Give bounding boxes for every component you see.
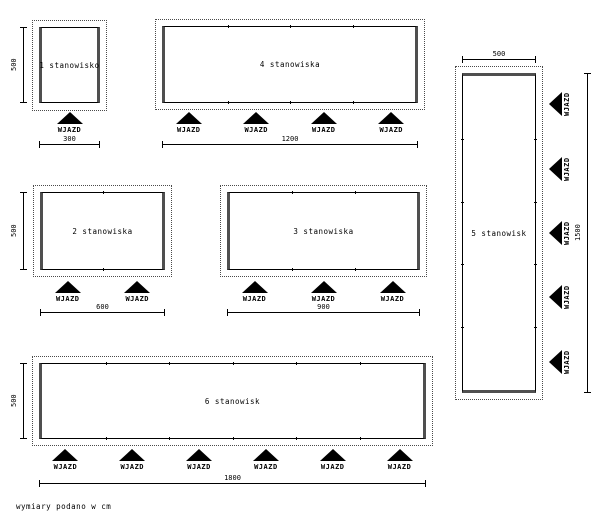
entrance-arrow-up-icon bbox=[311, 112, 337, 124]
entrance-label: WJAZD bbox=[187, 463, 211, 471]
layout-label: 3 stanowiska bbox=[293, 227, 353, 236]
entrance-marker: WJAZD bbox=[114, 281, 160, 303]
entrance-label: WJAZD bbox=[562, 210, 572, 256]
entrance-arrow-up-icon bbox=[124, 281, 150, 293]
entrance-arrows: WJAZDWJAZDWJAZDWJAZD bbox=[155, 112, 425, 134]
stall-divider-tick bbox=[106, 362, 107, 365]
stall-divider-tick bbox=[106, 437, 107, 440]
entrance-label: WJAZD bbox=[120, 463, 144, 471]
stall-divider-tick bbox=[233, 362, 234, 365]
entrance-label: WJAZD bbox=[562, 274, 572, 320]
entrance-marker: WJAZD bbox=[370, 281, 416, 303]
dimension-line bbox=[40, 312, 165, 313]
width-dimension: 500 bbox=[462, 48, 536, 60]
entrance-marker: WJAZD bbox=[42, 449, 88, 471]
entrance-arrow-up-icon bbox=[186, 449, 212, 461]
width-dimension: 300 bbox=[39, 133, 100, 145]
entrance-label: WJAZD bbox=[562, 81, 572, 127]
entrance-marker: WJAZD bbox=[47, 112, 93, 134]
stall-divider-tick bbox=[228, 101, 229, 104]
entrance-arrow-left-icon bbox=[549, 285, 562, 309]
entrance-arrow-up-icon bbox=[242, 281, 268, 293]
entrance-arrows: WJAZD bbox=[32, 112, 107, 134]
stall-divider-tick bbox=[534, 139, 537, 140]
stall-divider-tick bbox=[290, 101, 291, 104]
dimension-value: 500 bbox=[9, 363, 19, 439]
entrance-arrow-up-icon bbox=[52, 449, 78, 461]
dimension-value: 1200 bbox=[162, 135, 418, 143]
dimension-line bbox=[23, 192, 24, 270]
entrance-marker: WJAZD bbox=[166, 112, 212, 134]
dimension-line bbox=[227, 312, 420, 313]
stall-divider-tick bbox=[296, 362, 297, 365]
entrance-marker: WJAZD bbox=[243, 449, 289, 471]
layout-label: 6 stanowisk bbox=[205, 397, 260, 406]
entrance-arrow-up-icon bbox=[378, 112, 404, 124]
width-dimension: 1200 bbox=[162, 133, 418, 145]
stall-divider-tick bbox=[461, 327, 464, 328]
stall-divider-tick bbox=[103, 191, 104, 194]
stall-divider-tick bbox=[169, 437, 170, 440]
stall-divider-tick bbox=[534, 202, 537, 203]
entrance-arrows: WJAZDWJAZD bbox=[33, 281, 172, 303]
dimension-value: 600 bbox=[40, 303, 165, 311]
entrance-arrow-up-icon bbox=[119, 449, 145, 461]
stall-divider-tick bbox=[353, 101, 354, 104]
garage-rect: 2 stanowiska bbox=[40, 192, 165, 270]
entrance-arrow-up-icon bbox=[311, 281, 337, 293]
stall-divider-tick bbox=[353, 25, 354, 28]
dimension-value: 500 bbox=[462, 50, 536, 58]
stall-divider-tick bbox=[292, 268, 293, 271]
layout-label: 1 stanowisko bbox=[39, 61, 99, 70]
entrance-label: WJAZD bbox=[562, 146, 572, 192]
stall-divider-tick bbox=[292, 191, 293, 194]
entrance-arrow-left-icon bbox=[549, 221, 562, 245]
stall-divider-tick bbox=[355, 191, 356, 194]
entrance-marker: WJAZD bbox=[232, 281, 278, 303]
dimension-value: 500 bbox=[9, 27, 19, 103]
stall-divider-tick bbox=[296, 437, 297, 440]
stall-divider-tick bbox=[169, 362, 170, 365]
entrance-marker: WJAZD bbox=[233, 112, 279, 134]
entrance-arrow-up-icon bbox=[243, 112, 269, 124]
width-dimension: 1800 bbox=[39, 472, 426, 484]
entrance-arrows: WJAZDWJAZDWJAZDWJAZDWJAZDWJAZD bbox=[32, 449, 433, 471]
layout-label: 5 stanowisk bbox=[471, 229, 526, 238]
entrance-marker: WJAZD bbox=[377, 449, 423, 471]
garage-rect: 1 stanowisko bbox=[39, 27, 100, 103]
entrance-arrow-up-icon bbox=[253, 449, 279, 461]
entrance-arrow-left-icon bbox=[549, 350, 562, 374]
entrance-label: WJAZD bbox=[321, 463, 345, 471]
dimension-line bbox=[162, 144, 418, 145]
entrance-marker: WJAZD bbox=[176, 449, 222, 471]
floor-plan-canvas: 500 1 stanowisko WJAZD 300 4 stanowiska … bbox=[0, 0, 615, 528]
depth-dimension: 500 bbox=[9, 27, 24, 103]
dimension-value: 300 bbox=[39, 135, 100, 143]
garage-rect: 6 stanowisk bbox=[39, 363, 426, 439]
stall-divider-tick bbox=[461, 139, 464, 140]
entrance-arrow-up-icon bbox=[57, 112, 83, 124]
entrance-arrow-left-icon bbox=[549, 157, 562, 181]
dimension-line bbox=[462, 59, 536, 60]
depth-dimension: 500 bbox=[9, 363, 24, 439]
stall-divider-tick bbox=[360, 437, 361, 440]
dimension-line bbox=[39, 144, 100, 145]
dimension-value: 1800 bbox=[39, 474, 426, 482]
dimension-line bbox=[587, 73, 588, 393]
layout-label: 4 stanowiska bbox=[260, 60, 320, 69]
dimension-value: 500 bbox=[9, 192, 19, 270]
entrance-marker: WJAZD bbox=[301, 112, 347, 134]
stall-divider-tick bbox=[461, 264, 464, 265]
garage-rect: 4 stanowiska bbox=[162, 26, 418, 103]
depth-dimension: 500 bbox=[9, 192, 24, 270]
dimension-value: 900 bbox=[227, 303, 420, 311]
entrance-arrow-up-icon bbox=[176, 112, 202, 124]
entrance-arrow-up-icon bbox=[387, 449, 413, 461]
entrance-label: WJAZD bbox=[254, 463, 278, 471]
entrance-arrow-up-icon bbox=[55, 281, 81, 293]
stall-divider-tick bbox=[103, 268, 104, 271]
stall-divider-tick bbox=[290, 25, 291, 28]
entrance-arrows: WJAZDWJAZDWJAZD bbox=[220, 281, 427, 303]
entrance-marker: WJAZD bbox=[301, 281, 347, 303]
entrance-arrow-up-icon bbox=[380, 281, 406, 293]
stall-divider-tick bbox=[534, 327, 537, 328]
dimension-value: 1500 bbox=[573, 73, 583, 393]
stall-divider-tick bbox=[228, 25, 229, 28]
width-dimension: 900 bbox=[227, 301, 420, 313]
stall-divider-tick bbox=[355, 268, 356, 271]
dimension-line bbox=[23, 363, 24, 439]
entrance-label: WJAZD bbox=[562, 339, 572, 385]
entrance-arrow-up-icon bbox=[320, 449, 346, 461]
dimension-line bbox=[23, 27, 24, 103]
stall-divider-tick bbox=[233, 437, 234, 440]
entrance-marker: WJAZD bbox=[368, 112, 414, 134]
stall-divider-tick bbox=[534, 264, 537, 265]
stall-divider-tick bbox=[461, 202, 464, 203]
entrance-arrow-left-icon bbox=[549, 92, 562, 116]
entrance-label: WJAZD bbox=[388, 463, 412, 471]
entrance-label: WJAZD bbox=[54, 463, 78, 471]
dimension-line bbox=[39, 483, 426, 484]
stall-divider-tick bbox=[360, 362, 361, 365]
depth-dimension: 1500 bbox=[573, 73, 588, 393]
units-note: wymiary podano w cm bbox=[16, 502, 111, 511]
garage-rect: 3 stanowiska bbox=[227, 192, 420, 270]
garage-rect: 5 stanowisk bbox=[462, 73, 536, 393]
width-dimension: 600 bbox=[40, 301, 165, 313]
entrance-marker: WJAZD bbox=[45, 281, 91, 303]
entrance-marker: WJAZD bbox=[109, 449, 155, 471]
entrance-marker: WJAZD bbox=[310, 449, 356, 471]
layout-label: 2 stanowiska bbox=[72, 227, 132, 236]
